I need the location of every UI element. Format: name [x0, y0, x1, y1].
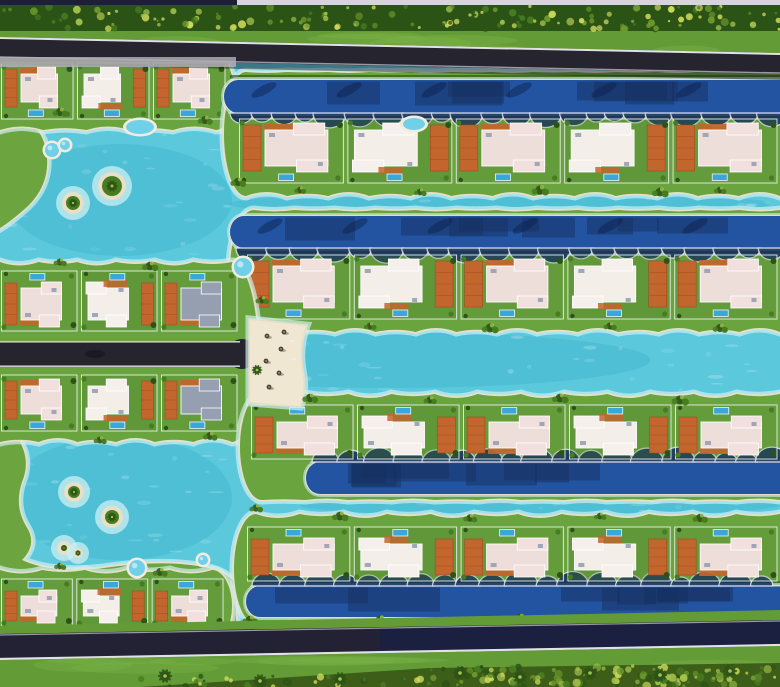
villa-shrub: [335, 175, 340, 180]
sparkle: [764, 201, 771, 204]
rooftop-unit: [277, 563, 283, 567]
villa-shrub: [154, 580, 158, 584]
canopy-speckle: [482, 6, 489, 13]
villa: [77, 579, 148, 627]
canopy-speckle: [750, 22, 756, 28]
villa-row: [247, 255, 777, 319]
villa-shrub: [555, 311, 560, 316]
villa-roof-wing: [388, 565, 419, 577]
sparkle: [619, 346, 623, 351]
palm-crown: [161, 17, 164, 20]
canopy-speckle: [655, 4, 661, 10]
villa-shrub: [343, 258, 349, 264]
sparkle: [200, 540, 211, 544]
villa-roof-wing: [304, 296, 335, 308]
villa-shrub: [445, 122, 451, 128]
villa-shrub: [357, 314, 361, 318]
canopy-speckle: [552, 668, 556, 672]
villa-roof-wing: [189, 67, 207, 79]
driveway-apron: [0, 57, 236, 67]
canopy-speckle: [135, 6, 142, 13]
villa: [348, 119, 452, 183]
canopy-speckle: [579, 18, 584, 23]
villa-pool: [500, 530, 515, 537]
villa-shrub: [771, 122, 777, 128]
villa-shadow-on-canal: [658, 588, 733, 602]
canopy-speckle: [590, 26, 596, 32]
villa-row: [251, 405, 777, 459]
rooftop-unit: [578, 563, 584, 567]
canopy-speckle: [620, 24, 625, 29]
grass-streak: [33, 658, 132, 672]
villa-pool-deck: [384, 303, 408, 310]
villa-pool: [179, 582, 194, 589]
shrub: [61, 261, 66, 266]
rooftop-unit: [412, 298, 417, 302]
villa-shrub: [771, 572, 777, 578]
palm-crown: [72, 202, 74, 204]
canopy-speckle: [438, 23, 446, 31]
shrub: [721, 189, 726, 194]
palm-crown: [163, 674, 167, 678]
shrub: [342, 515, 349, 522]
villa-shrub: [231, 322, 237, 328]
villa: [461, 527, 563, 581]
villa-pool-deck: [378, 167, 402, 174]
canopy-speckle: [633, 23, 636, 26]
sparkle: [67, 524, 72, 526]
sparkle: [180, 242, 185, 246]
villa-pool: [30, 274, 45, 281]
shrub: [682, 399, 689, 406]
villa-shadow-on-canal: [275, 588, 368, 604]
villa: [1, 271, 77, 331]
shrub: [60, 563, 63, 566]
villa-shrub: [664, 258, 670, 264]
rooftop-unit: [52, 288, 57, 292]
canopy-speckle: [597, 25, 603, 31]
beach-umbrella-top: [266, 335, 267, 336]
shrub: [205, 116, 209, 120]
shrub: [255, 299, 260, 304]
villa-shrub: [140, 581, 145, 586]
canopy-speckle: [105, 25, 111, 31]
canopy-speckle: [696, 673, 704, 681]
canopy-speckle: [52, 20, 56, 24]
canopy-speckle: [353, 21, 359, 27]
beach-umbrella-top: [278, 372, 279, 373]
villa-roof-wing: [201, 282, 221, 294]
villa: [456, 119, 560, 183]
round-pool: [198, 555, 208, 565]
canopy-speckle: [760, 666, 764, 670]
villa-shrub: [552, 175, 557, 180]
villa-shrub: [64, 581, 69, 586]
shrub: [540, 185, 544, 189]
villa: [568, 527, 670, 581]
villa-pool: [387, 174, 402, 181]
canopy-speckle: [418, 26, 421, 29]
canopy-speckle: [454, 19, 460, 25]
sparkle: [706, 352, 712, 356]
canopy-speckle: [509, 9, 516, 16]
beach-umbrella-top: [283, 331, 284, 332]
canopy-speckle: [721, 18, 729, 26]
canopy-speckle: [317, 673, 324, 680]
canopy-speckle: [323, 16, 328, 21]
rooftop-unit: [185, 389, 191, 393]
canopy-speckle: [676, 678, 680, 682]
resort-aerial-scene: [0, 0, 780, 687]
canopy-speckle: [354, 24, 356, 26]
canopy-speckle: [344, 25, 350, 31]
beach-umbrella-top: [268, 386, 269, 387]
canopy-speckle: [427, 682, 431, 686]
villa-roof-wing: [602, 565, 633, 577]
sparkle: [327, 387, 339, 391]
villa-block-b-c: [0, 262, 258, 442]
villa: [354, 527, 456, 581]
sparkle: [90, 247, 101, 251]
shrub: [210, 432, 214, 436]
shrub: [421, 191, 426, 196]
border-bar-segment: [0, 0, 237, 5]
villa-shrub: [149, 273, 154, 278]
sparkle: [366, 367, 381, 369]
canopy-speckle: [8, 8, 12, 12]
canopy-speckle: [271, 675, 274, 678]
canopy-speckle: [224, 676, 229, 681]
border-bar-segment: [237, 0, 780, 5]
villa-pool: [714, 408, 729, 415]
villa-pool: [104, 110, 119, 117]
shrub: [364, 325, 368, 329]
shrub: [61, 565, 66, 570]
canopy-speckle: [751, 676, 756, 681]
villa-shrub: [360, 406, 364, 410]
rooftop-unit: [624, 162, 629, 166]
villa-roof-wing: [510, 123, 541, 135]
villa-roof-wing: [81, 590, 99, 602]
villa-roof-wing: [106, 315, 126, 327]
shrub: [492, 327, 499, 334]
villa-shrub: [769, 175, 774, 180]
canopy-speckle: [111, 23, 114, 26]
canopy-speckle: [346, 6, 349, 9]
rooftop-unit: [703, 133, 709, 137]
canopy-speckle: [705, 669, 709, 673]
sparkle: [725, 344, 738, 347]
shrub: [420, 188, 423, 191]
shrub: [230, 181, 235, 186]
villa-pool-deck: [595, 167, 619, 174]
canopy-speckle: [512, 23, 517, 28]
rooftop-unit: [368, 441, 374, 445]
villa-shrub: [229, 273, 234, 278]
canopy-speckle: [366, 13, 372, 19]
canopy-speckle: [118, 12, 126, 20]
villa-shrub: [1, 376, 6, 381]
canopy-speckle: [668, 6, 675, 13]
canopy-speckle: [652, 668, 655, 671]
villa-shrub: [771, 258, 777, 264]
sparkle: [149, 485, 159, 488]
sparkle: [76, 144, 87, 147]
villa-shrub: [461, 574, 466, 579]
villa-shrub: [459, 178, 463, 182]
sparkle: [121, 476, 129, 480]
sparkle: [223, 205, 231, 208]
sparkle: [108, 453, 114, 456]
rooftop-unit: [752, 298, 757, 302]
canopy-speckle: [372, 6, 376, 10]
rooftop-unit: [198, 596, 203, 600]
sparkle: [147, 534, 162, 538]
canopy-speckle: [404, 5, 408, 9]
canopy-speckle: [716, 669, 720, 673]
villa-shrub: [450, 258, 456, 264]
sparkle: [708, 375, 724, 379]
aerial-master-plan-rendering: [0, 0, 780, 687]
villa-shadow-on-canal: [618, 218, 659, 232]
villa-pool: [604, 174, 619, 181]
sparkle: [573, 358, 580, 360]
villa-shrub: [662, 122, 668, 128]
villa-shrub: [4, 426, 8, 430]
rooftop-unit: [578, 269, 584, 273]
shrub: [463, 517, 468, 522]
rooftop-unit: [111, 98, 116, 102]
rooftop-unit: [704, 563, 710, 567]
villa: [1, 375, 77, 431]
pool-glint: [237, 261, 243, 267]
rooftop-unit: [704, 269, 710, 273]
rooftop-unit: [200, 98, 205, 102]
sparkle: [81, 170, 91, 174]
canopy-speckle: [617, 668, 624, 675]
canopy-speckle: [191, 17, 198, 24]
palm-crown: [111, 185, 114, 188]
canopy-speckle: [97, 12, 105, 20]
villa: [77, 63, 149, 119]
shrub: [100, 436, 103, 439]
shrub: [101, 439, 106, 444]
palm-crown: [588, 671, 592, 675]
villa-roof-wing: [600, 123, 631, 135]
villa-shrub: [673, 120, 678, 125]
rooftop-unit: [318, 162, 323, 166]
canopy-speckle: [493, 7, 498, 12]
canopy-speckle: [143, 9, 149, 15]
canopy-speckle: [554, 675, 559, 680]
canopy-speckle: [216, 25, 221, 30]
villa-roof-wing: [39, 379, 59, 391]
shrub: [212, 435, 218, 441]
canopy-speckle: [178, 23, 181, 26]
villa-pool-deck: [599, 414, 623, 421]
rooftop-unit: [626, 544, 631, 548]
rooftop-unit: [705, 441, 711, 445]
shrub: [660, 187, 664, 191]
villa-pool: [286, 310, 301, 317]
rooftop-unit: [535, 162, 540, 166]
shrub: [60, 108, 64, 112]
villa-pool: [286, 530, 301, 537]
villa-shrub: [71, 322, 77, 328]
rooftop-unit: [25, 609, 31, 613]
beach-wedge: [250, 320, 306, 406]
canopy-speckle: [157, 23, 161, 27]
villa: [239, 119, 343, 183]
villa-shrub: [239, 120, 244, 125]
villa-shrub: [677, 528, 681, 532]
sparkle: [737, 203, 746, 206]
rooftop-unit: [119, 288, 124, 292]
rooftop-unit: [540, 422, 545, 426]
canopy-speckle: [697, 6, 700, 9]
villa: [569, 405, 671, 459]
canopy-speckle: [73, 6, 81, 14]
villa-shrub: [463, 314, 467, 318]
villa-shrub: [664, 572, 670, 578]
canopy-speckle: [247, 17, 255, 25]
rooftop-unit: [212, 410, 217, 414]
villa: [565, 119, 669, 183]
villa: [153, 63, 225, 119]
canopy-speckle: [430, 675, 436, 681]
canopy-speckle: [350, 22, 353, 25]
round-pool: [60, 140, 70, 150]
canopy-speckle: [730, 22, 735, 27]
canopy-speckle: [557, 22, 560, 25]
villa-shrub: [461, 256, 466, 261]
villa-shrub: [354, 256, 359, 261]
palm-crown: [518, 675, 522, 679]
villa-roof-wing: [728, 443, 758, 455]
canopy-speckle: [527, 16, 534, 23]
shrub: [340, 511, 344, 515]
villa-shrub: [451, 407, 456, 412]
villa-roof-wing: [730, 160, 761, 172]
villa-pool: [103, 582, 118, 589]
rooftop-unit: [48, 98, 53, 102]
shrub: [714, 189, 718, 193]
grass-streak: [385, 35, 517, 46]
villa-shrub: [151, 378, 157, 384]
sparkle: [39, 540, 51, 544]
villa-row: [1, 375, 237, 431]
canopy-speckle: [745, 672, 748, 675]
sparkle: [66, 445, 76, 449]
villa: [354, 255, 456, 319]
villa-shrub: [250, 528, 254, 532]
shrub: [207, 119, 213, 125]
lagoon-finger-3: [240, 394, 780, 500]
round-pool: [45, 143, 59, 157]
villa-shrub: [565, 120, 570, 125]
sparkle: [103, 150, 108, 153]
canopy-speckle: [198, 674, 203, 679]
villa-roof-wing: [37, 611, 55, 623]
canopy-speckle: [705, 5, 712, 12]
shrub: [431, 399, 436, 404]
villa-shrub: [161, 376, 166, 381]
rooftop-unit: [109, 596, 114, 600]
villa-roof-wing: [99, 611, 117, 623]
villa-shrub: [247, 574, 252, 579]
villa-shadow-on-canal: [452, 82, 504, 104]
villa-roof-wing: [727, 123, 758, 135]
beach-lounger: [292, 358, 297, 360]
canopy-speckle: [291, 17, 296, 22]
rooftop-unit: [491, 563, 497, 567]
canopy-speckle: [403, 678, 406, 681]
villa-roof-wing: [301, 565, 332, 577]
villa-shrub: [350, 178, 354, 182]
canopy-speckle: [56, 20, 61, 25]
shrub: [601, 515, 606, 520]
canopy-speckle: [535, 679, 541, 685]
grass-streak: [288, 657, 449, 663]
villa-shrub: [151, 322, 157, 328]
canopy-speckle: [533, 19, 536, 22]
kidney-pool: [126, 120, 154, 134]
villa-shrub: [466, 406, 470, 410]
sparkle: [176, 201, 184, 203]
villa: [675, 527, 777, 581]
villa-shrub: [80, 114, 84, 118]
shrub: [162, 571, 168, 577]
canopy-speckle: [633, 4, 640, 11]
shrub: [722, 327, 728, 333]
canopy-speckle: [182, 21, 189, 28]
villa: [673, 119, 777, 183]
villa-roof-wing: [517, 296, 548, 308]
canopy-speckle: [668, 20, 670, 22]
villa-roof-wing: [100, 67, 118, 79]
shrub: [470, 514, 473, 517]
villa: [251, 405, 353, 459]
palm-crown: [468, 13, 471, 16]
villa-shrub: [357, 452, 362, 457]
shrub: [53, 111, 58, 116]
canopy-speckle: [764, 665, 772, 673]
villa-roof-wing: [304, 538, 335, 550]
villa-shrub: [4, 114, 8, 118]
villa-pool: [28, 110, 43, 117]
canopy-speckle: [334, 25, 339, 30]
sparkle: [128, 540, 143, 542]
canopy-speckle: [677, 6, 680, 9]
villa-pool: [500, 310, 515, 317]
canopy-speckle: [470, 22, 478, 30]
villa-shrub: [661, 175, 666, 180]
palm-crown: [338, 677, 342, 681]
villa: [568, 255, 670, 319]
rooftop-unit: [277, 269, 283, 273]
shrub: [256, 504, 259, 507]
canopy-speckle: [138, 26, 141, 29]
canopy-speckle: [115, 10, 118, 13]
shrub: [301, 189, 306, 194]
canopy-speckle: [326, 675, 330, 679]
villa-pool: [279, 174, 294, 181]
shrub: [198, 119, 203, 124]
canopy-speckle: [283, 678, 290, 685]
canopy-speckle: [762, 13, 766, 17]
sparkle: [203, 163, 208, 166]
villa-shrub: [69, 423, 74, 428]
